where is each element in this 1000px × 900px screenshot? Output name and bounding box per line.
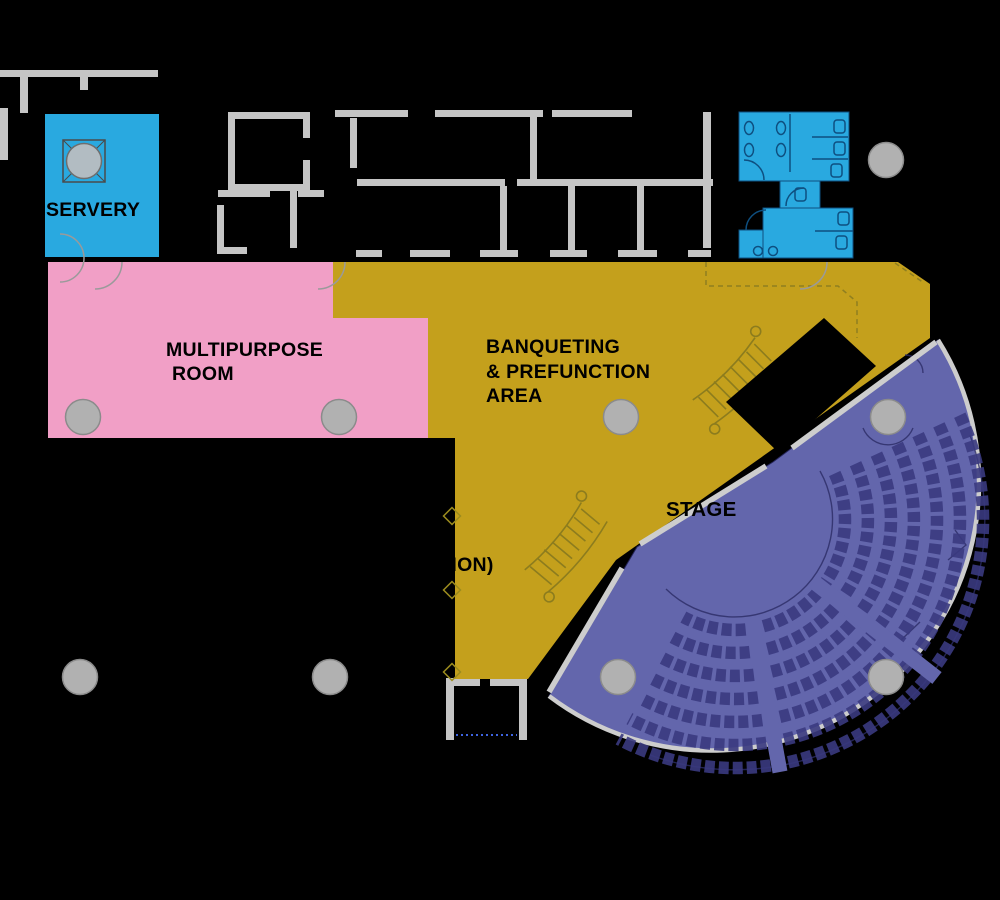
- wall-segment: [480, 250, 518, 257]
- column: [63, 660, 98, 695]
- washroom-floor: [763, 208, 853, 258]
- banqueting-label-line1: BANQUETING: [486, 336, 620, 358]
- wall-segment: [217, 247, 247, 254]
- washroom-floor: [739, 230, 763, 258]
- room-servery: SERVERY: [45, 114, 159, 257]
- wall-segment: [298, 190, 324, 197]
- column: [869, 660, 904, 695]
- stage-label: STAGE: [666, 498, 737, 521]
- wall-segment: [490, 678, 527, 686]
- column: [601, 660, 636, 695]
- column: [322, 400, 357, 435]
- multipurpose-label-line2: ROOM: [172, 363, 234, 385]
- column: [67, 144, 102, 179]
- wall-segment: [618, 250, 657, 257]
- wall-segment: [20, 77, 28, 113]
- wall-segment: [688, 250, 711, 257]
- banqueting-label-line2: & PREFUNCTION: [486, 361, 650, 383]
- column: [313, 660, 348, 695]
- wall-segment: [568, 186, 575, 252]
- wall-segment: [228, 112, 235, 191]
- wall-segment: [446, 678, 454, 740]
- floor-plan-canvas: SERVERY MULTIPURPOSE ROOM: [0, 0, 1000, 900]
- washroom-floor: [739, 112, 849, 181]
- wall-segment: [217, 205, 224, 250]
- servery-floor: [45, 114, 159, 257]
- wall-segment: [228, 112, 310, 119]
- servery-label: SERVERY: [46, 199, 140, 221]
- terrace-label-line2: TERRACE: [343, 529, 439, 551]
- wall-segment: [0, 108, 8, 160]
- wall-segment: [350, 118, 357, 168]
- terrace-label-line1: OPEN: [343, 504, 399, 526]
- wall-segment: [228, 184, 310, 191]
- terrace-label-line3: (PREFUNCTION): [336, 554, 494, 576]
- wall-segment: [356, 250, 382, 257]
- wall-segment: [500, 186, 507, 252]
- wall-segment: [519, 678, 527, 740]
- wall-segment: [80, 76, 88, 90]
- column: [869, 143, 904, 178]
- wall-segment: [335, 110, 408, 117]
- wall-segment: [410, 250, 450, 257]
- wall-segment: [517, 179, 713, 186]
- wall-segment: [303, 112, 310, 138]
- wall-segment: [637, 186, 644, 252]
- multipurpose-label-line1: MULTIPURPOSE: [166, 339, 323, 361]
- wall-segment: [552, 110, 632, 117]
- banqueting-label-line3: AREA: [486, 385, 542, 407]
- wall-segment: [218, 190, 270, 197]
- floor-plan: SERVERY MULTIPURPOSE ROOM: [0, 0, 1000, 900]
- wall-segment: [550, 250, 587, 257]
- column: [66, 400, 101, 435]
- column: [871, 400, 906, 435]
- wall-segment: [290, 190, 297, 248]
- wall-segment: [0, 70, 158, 77]
- wall-segment: [357, 179, 505, 186]
- column: [604, 400, 639, 435]
- wall-segment: [435, 110, 543, 117]
- wall-segment: [530, 117, 537, 179]
- wall-segment: [303, 160, 310, 191]
